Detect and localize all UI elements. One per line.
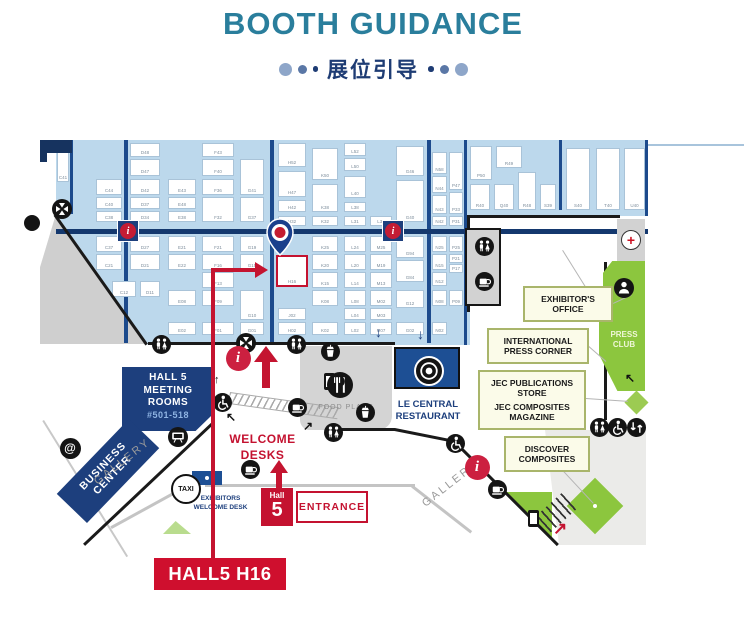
path-horizontal (205, 484, 415, 487)
booth-guidance-page: BOOTH GUIDANCE 展位引导 C41C44C40C38D48D47D4… (0, 0, 746, 618)
green-diamond-small (624, 390, 648, 414)
arrow-icon: ↖ (625, 372, 635, 384)
booth-K02: K02 (312, 322, 338, 335)
arrow-icon: ↗ (553, 520, 567, 537)
booth-C12: C12 (112, 281, 136, 297)
beverage-icon (356, 403, 375, 422)
booth-N43: N43 (432, 195, 447, 214)
booth-S39: S39 (540, 184, 556, 210)
booth-G84: G84 (396, 260, 424, 282)
booth-F21: F21 (202, 236, 234, 252)
booth-G41: G41 (240, 159, 264, 195)
booth-L31: L31 (344, 216, 366, 226)
booth-H52: H52 (278, 143, 306, 167)
booth-E43: E43 (168, 179, 196, 195)
booth-F40: F40 (202, 159, 234, 176)
aisle-v4 (427, 140, 431, 343)
toilet-icon (590, 418, 609, 437)
booth-F01: F01 (202, 322, 234, 335)
booth-G37: G37 (240, 197, 264, 222)
coffee-icon (488, 480, 507, 499)
page-subtitle: 展位引导 (327, 54, 419, 84)
entrance-box: ENTRANCE (296, 491, 368, 523)
aisle-v6 (559, 140, 562, 210)
booth-K32: K32 (312, 216, 338, 226)
booth-E08: E08 (168, 290, 196, 306)
booth-L52: L52 (344, 143, 366, 156)
dots-right-decoration (428, 63, 468, 76)
booth-P50: P50 (470, 146, 492, 180)
booth-K38: K38 (312, 184, 338, 212)
booth-P09: P09 (449, 290, 463, 306)
booth-H42: H42 (278, 200, 306, 212)
booth-K25: K25 (312, 236, 338, 252)
page-title: BOOTH GUIDANCE (0, 6, 746, 42)
booth-G19: G19 (240, 236, 264, 252)
aisle-v7 (645, 140, 648, 216)
meeting-rooms-box: HALL 5 MEETING ROOMS #501-518 (122, 367, 214, 431)
diamond-dot (593, 504, 597, 508)
at-icon: @ (60, 438, 81, 459)
coffee-icon (288, 398, 307, 417)
wheelchair-icon (213, 393, 232, 412)
location-pin-icon (265, 217, 295, 262)
booth-L38: L38 (344, 202, 366, 212)
plate-icon (414, 356, 444, 386)
booth-F32: F32 (202, 197, 234, 222)
green-triangle-left (163, 521, 191, 534)
booth-E21: E21 (168, 236, 196, 252)
firstaid-icon: + (621, 230, 641, 250)
press-club-label: PRESS CLUB (603, 330, 645, 349)
booth-P33: P33 (449, 192, 463, 214)
booth-N08: N08 (432, 290, 447, 306)
toilet-icon (324, 423, 343, 442)
booth-G12: G12 (396, 290, 424, 308)
booth-N25: N25 (432, 236, 447, 252)
booth-E22: E22 (168, 254, 196, 270)
crossing-icon (52, 199, 72, 219)
arrow-icon: ↖ (226, 411, 236, 423)
booth-N42: N42 (432, 216, 447, 226)
wheelchair-icon (446, 434, 465, 453)
booth-E38: E38 (168, 211, 196, 222)
map-edge-line-top-right (648, 144, 744, 146)
discover-composites-label: DISCOVER COMPOSITES (504, 436, 590, 472)
booth-K20: K20 (312, 254, 338, 270)
beverage-icon (321, 342, 340, 361)
booth-F43: F43 (202, 143, 234, 157)
subtitle-row: 展位引导 (0, 54, 746, 84)
jec-store-magazine-label: JEC PUBLICATIONS STORE JEC COMPOSITES MA… (478, 370, 586, 430)
route-line-horizontal (211, 268, 257, 272)
hall5-entrance-flag: Hall 5 (261, 488, 293, 526)
booth-N02: N02 (432, 322, 447, 335)
coffee-icon (241, 460, 260, 479)
taxi-icon: TAXI (171, 474, 201, 504)
leader-exh-office (562, 250, 586, 288)
target-booth-label: HALL5 H16 (154, 558, 286, 590)
intl-press-corner-label: INTERNATIONAL PRESS CORNER (487, 328, 589, 364)
booth-P21: P21 (449, 254, 463, 263)
forkknife-icon (327, 372, 353, 398)
booth-G10: G10 (240, 290, 264, 320)
booth-E48: E48 (168, 197, 196, 209)
edge-icon (24, 215, 40, 231)
booth-G40: G40 (396, 180, 424, 222)
toilet-icon (287, 335, 306, 354)
booth-P47: P47 (449, 152, 463, 190)
booth-L20: L20 (344, 254, 366, 270)
route-arrowhead (255, 262, 268, 278)
booth-R48: R48 (518, 172, 536, 210)
hall-bottom-edge (148, 342, 395, 345)
booth-M13: M13 (370, 272, 392, 288)
booth-C21: C21 (96, 254, 122, 270)
dots-left-decoration (279, 63, 319, 76)
booth-H47: H47 (278, 171, 306, 197)
booth-K08: K08 (312, 290, 338, 306)
booth-Q40: Q40 (494, 184, 514, 210)
arrow-icon: ↑ (214, 375, 220, 386)
booth-K50: K50 (312, 148, 338, 180)
booth-M02: M02 (370, 290, 392, 306)
aisle-h-main (56, 229, 648, 234)
booth-H02: H02 (278, 322, 306, 335)
hall-corner-navy-stub (40, 140, 47, 162)
infosq-icon: i (382, 220, 404, 242)
booth-F13: F13 (202, 272, 234, 288)
booth-M03: M03 (370, 308, 392, 320)
wheelchair-icon (608, 418, 627, 437)
booth-N12: N12 (432, 272, 447, 286)
office-area-top-edge (467, 215, 620, 218)
person-icon (614, 278, 634, 298)
escalator-icon (627, 418, 646, 437)
booth-L14: L14 (344, 272, 366, 288)
booth-N44: N44 (432, 176, 447, 193)
booth-P31: P31 (449, 216, 463, 226)
booth-M19: M19 (370, 254, 392, 270)
arrow-icon: ↓ (417, 327, 424, 341)
booth-C44: C44 (96, 179, 122, 195)
info-icon: i (226, 346, 251, 371)
toilet-icon (152, 335, 171, 354)
booth-D37: D37 (130, 197, 160, 209)
booth-P25: P25 (449, 236, 463, 252)
infosq-icon: i (117, 220, 139, 242)
booth-L24: L24 (344, 236, 366, 252)
booth-S40: S40 (566, 148, 590, 210)
booth-C41: C41 (57, 152, 69, 182)
booth-K15: K15 (312, 272, 338, 288)
booth-D47: D47 (130, 159, 160, 176)
booth-D21: D21 (130, 254, 160, 270)
booth-J02: J02 (278, 308, 306, 320)
booth-U40: U40 (624, 148, 645, 210)
phone-icon (528, 510, 539, 527)
booth-N15: N15 (432, 254, 447, 270)
projector-icon (168, 427, 188, 447)
booth-N58: N58 (432, 152, 447, 174)
le-central-label: LE CENTRAL RESTAURANT (390, 399, 466, 423)
food-place-label: FOOD PLACE (303, 404, 389, 411)
booth-R49: R49 (496, 146, 522, 168)
booth-L02: L02 (344, 322, 366, 335)
arrow-icon: ↓ (375, 325, 382, 339)
coffee-icon (475, 272, 494, 291)
booth-T40: T40 (596, 148, 620, 210)
welcome-desks-label: WELCOME DESKS (215, 432, 310, 463)
booth-L40: L40 (344, 176, 366, 198)
exhibitors-office-label: EXHIBITOR'S OFFICE (523, 286, 613, 322)
booth-L04: L04 (344, 308, 366, 320)
booth-D11: D11 (140, 281, 160, 297)
booth-F36: F36 (202, 179, 234, 195)
booth-L50: L50 (344, 158, 366, 171)
booth-G46: G46 (396, 146, 424, 176)
toilet-icon (475, 237, 494, 256)
route-line-vertical (211, 268, 215, 560)
booth-D42: D42 (130, 179, 160, 195)
booth-R40: R40 (470, 184, 490, 210)
foodplace-bottom-edge (335, 428, 395, 431)
booth-P17: P17 (449, 264, 463, 273)
booth-E02: E02 (168, 322, 196, 335)
booth-C40: C40 (96, 197, 122, 209)
booth-L08: L08 (344, 290, 366, 306)
arrow-icon: ↗ (303, 420, 313, 432)
info-icon: i (465, 455, 490, 480)
booth-F09: F09 (202, 290, 234, 306)
booth-D48: D48 (130, 143, 160, 157)
